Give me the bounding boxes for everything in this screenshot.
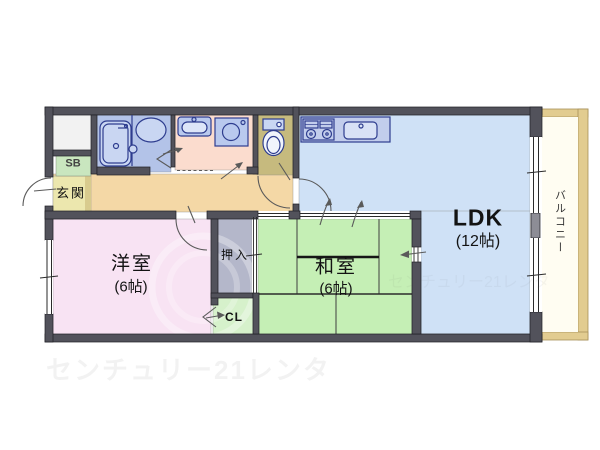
wall-window-pillar	[531, 213, 540, 238]
japanese-room-size: (6帖)	[319, 282, 352, 297]
balcony-label: バルコニー	[554, 190, 565, 255]
western-room-size: (6帖)	[114, 280, 147, 295]
kitchen-counter	[301, 117, 390, 142]
watermark-middle: センチュリー21レンタ	[388, 268, 550, 292]
ldk-label: LDK	[453, 207, 503, 230]
western-room-label: 洋室	[111, 255, 153, 274]
bath-stool-icon	[129, 145, 137, 153]
kitchen-sink-icon	[344, 122, 377, 139]
bath-basin-icon	[136, 118, 166, 142]
washbasin-icon	[178, 117, 211, 136]
bathtub-icon	[100, 121, 131, 166]
toilet-icon	[263, 119, 284, 156]
floorplan-canvas: LDK (12帖) 洋室 (6帖) 和室 (6帖) 押入 CL SB 玄関 バル…	[0, 0, 600, 450]
cl-label: CL	[225, 311, 243, 323]
watermark-bottom: センチュリー21レンタ	[46, 350, 331, 387]
japanese-room-label: 和室	[315, 258, 357, 277]
room-meter-box	[53, 115, 92, 151]
entrance-door-arc	[23, 178, 51, 206]
oshiire-label: 押入	[221, 249, 249, 261]
entrance-label: 玄関	[56, 187, 86, 200]
ldk-size-label: (12帖)	[456, 234, 500, 250]
shoe-box-label: SB	[65, 159, 80, 170]
washing-machine-icon	[215, 118, 248, 146]
